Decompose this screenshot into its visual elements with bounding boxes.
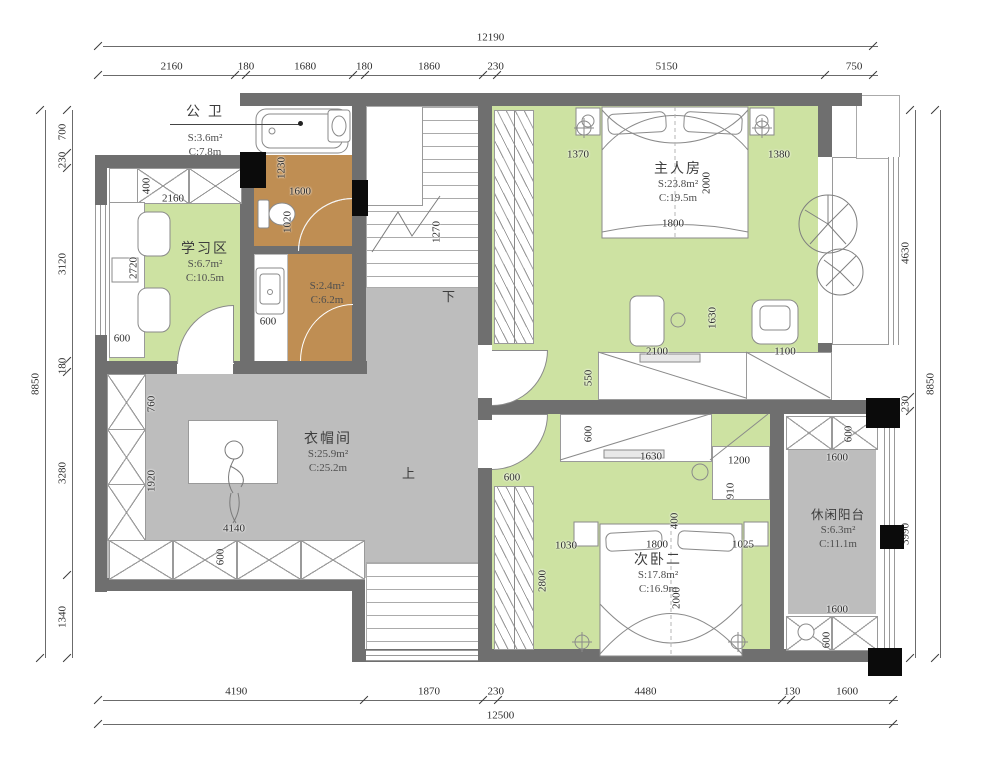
room-name: 衣帽间 xyxy=(304,430,352,446)
interior-dimension-label: 910 xyxy=(726,483,737,500)
dimension-tick xyxy=(93,720,101,728)
room-area: S:25.9m² xyxy=(304,448,352,460)
wall-segment xyxy=(818,93,832,157)
room-name: 休闲阳台 xyxy=(811,508,865,522)
wall-segment xyxy=(770,414,784,654)
room-area: S:3.6m² xyxy=(188,132,223,144)
interior-dimension-label: 1920 xyxy=(147,470,158,492)
interior-dimension-label: 1230 xyxy=(277,157,288,179)
dimension-label: 1680 xyxy=(294,62,316,73)
room-circ: C:25.2m xyxy=(304,462,352,474)
interior-dimension-label: 600 xyxy=(504,473,521,484)
interior-dimension-label: 4140 xyxy=(223,524,245,535)
dimension-tick xyxy=(62,106,70,114)
dimension-label: 700 xyxy=(58,123,69,140)
interior-dimension-label: 760 xyxy=(147,396,158,413)
interior-dimension-label: 2000 xyxy=(672,587,683,609)
dimension-label: 180 xyxy=(58,358,69,375)
dimension-tick xyxy=(35,106,43,114)
interior-dimension-label: 1600 xyxy=(826,605,848,616)
upper-stairs-landing xyxy=(367,107,423,206)
room-area: S:2.4m² xyxy=(310,280,345,292)
column-marker xyxy=(880,525,904,549)
wall-segment xyxy=(107,361,177,374)
top-balcony-window xyxy=(888,157,900,345)
interior-dimension-label: 1270 xyxy=(432,221,443,243)
study-top-closet-2 xyxy=(189,168,242,204)
master-tv-cabinet-right xyxy=(746,352,832,400)
cloak-closet-bottom-4 xyxy=(301,540,365,580)
room-label-zhurenfang: 主人房 S:23.8m² C:19.5m xyxy=(654,160,702,204)
dimension-label: 180 xyxy=(238,62,255,73)
interior-dimension-label: 1100 xyxy=(774,347,796,358)
room-circ: C:6.2m xyxy=(310,294,345,306)
dimension-tick xyxy=(62,571,70,579)
dimension-tick xyxy=(905,106,913,114)
room-label-yimaojian: 衣帽间 S:25.9m² C:25.2m xyxy=(304,430,352,474)
interior-dimension-label: 2800 xyxy=(538,570,549,592)
wall-segment xyxy=(240,93,862,106)
wall-segment xyxy=(478,468,492,660)
gongwei-leader-dot xyxy=(298,121,303,126)
dimension-line xyxy=(940,110,941,658)
column-marker xyxy=(868,648,902,676)
cloak-closet-bottom-2 xyxy=(173,540,237,580)
interior-dimension-label: 400 xyxy=(670,513,681,530)
room-label-yangtai: 休闲阳台 S:6.3m² C:11.1m xyxy=(811,508,865,551)
dimension-tick xyxy=(93,71,101,79)
floor-plan-canvas: { "colors":{"wall":"#6f6f6f","green":"#c… xyxy=(0,0,1000,777)
dimension-label: 4480 xyxy=(635,687,657,698)
interior-dimension-label: 600 xyxy=(260,317,277,328)
bathtub-icon xyxy=(256,109,348,153)
dimension-label: 3120 xyxy=(58,253,69,275)
interior-dimension-label: 1600 xyxy=(289,187,311,198)
dimension-label: 1870 xyxy=(418,687,440,698)
gongwei-leader-line xyxy=(170,124,300,125)
dimension-label: 8850 xyxy=(926,373,937,395)
room-label-xuexiqu: 学习区 S:6.7m² C:10.5m xyxy=(181,240,229,284)
interior-dimension-label: 400 xyxy=(142,178,153,195)
dimension-line xyxy=(103,46,878,47)
dimension-label: 12500 xyxy=(487,711,515,722)
dimension-tick xyxy=(930,654,938,662)
room-label-bath2: S:2.4m² C:6.2m xyxy=(310,278,345,306)
interior-dimension-label: 1020 xyxy=(283,211,294,233)
left-wall-window xyxy=(95,205,107,335)
interior-dimension-label: 1200 xyxy=(728,456,750,467)
dimension-label: 230 xyxy=(487,62,504,73)
dimension-label: 8850 xyxy=(31,373,42,395)
wall-segment xyxy=(478,93,492,345)
interior-dimension-label: 2000 xyxy=(702,172,713,194)
interior-dimension-label: 550 xyxy=(584,370,595,387)
cloak-closet-left-2 xyxy=(107,429,146,486)
corridor-fill xyxy=(366,285,478,562)
room-name: 次卧二 xyxy=(634,551,682,567)
room-label-gongwei-stats: S:3.6m² C:7.8m xyxy=(188,130,223,158)
second-bedroom-wardrobe xyxy=(494,486,534,650)
interior-dimension-label: 600 xyxy=(822,632,833,649)
dimension-label: 12190 xyxy=(477,33,505,44)
interior-dimension-label: 2100 xyxy=(646,347,668,358)
lower-stairs xyxy=(366,562,480,651)
wall-segment xyxy=(352,578,365,660)
dimension-line xyxy=(45,110,46,658)
room-circ: C:7.8m xyxy=(188,146,223,158)
interior-dimension-label: 600 xyxy=(584,426,595,443)
dimension-tick xyxy=(905,654,913,662)
master-tv-cabinet-left xyxy=(598,352,748,400)
dimension-line xyxy=(103,724,898,725)
interior-dimension-label: 1370 xyxy=(567,150,589,161)
cloak-island xyxy=(188,420,278,484)
wall-segment xyxy=(95,155,247,168)
interior-dimension-label: 600 xyxy=(216,549,227,566)
room-label-gongwei: 公 卫 xyxy=(186,103,224,119)
cloak-closet-left-1 xyxy=(107,374,146,431)
room-circ: C:11.1m xyxy=(811,538,865,550)
interior-dimension-label: 1630 xyxy=(708,307,719,329)
dimension-tick xyxy=(62,654,70,662)
interior-dimension-label: 1600 xyxy=(826,453,848,464)
room-area: S:23.8m² xyxy=(654,178,702,190)
study-door-leaf xyxy=(233,305,234,363)
dimension-line xyxy=(72,110,73,658)
interior-dimension-label: 1800 xyxy=(662,219,684,230)
room-name: 公 卫 xyxy=(186,103,224,119)
dimension-tick xyxy=(93,696,101,704)
stair-bay-window xyxy=(366,650,478,661)
interior-dimension-label: 2720 xyxy=(129,257,140,279)
room-area: S:6.7m² xyxy=(181,258,229,270)
master-door-leaf xyxy=(492,350,547,351)
master-wardrobe xyxy=(494,110,534,344)
dimension-label: 1600 xyxy=(836,687,858,698)
study-top-counter xyxy=(109,168,139,204)
right-cabinet-bottom-2 xyxy=(832,616,878,651)
room-circ: C:10.5m xyxy=(181,272,229,284)
interior-dimension-label: 600 xyxy=(114,334,131,345)
interior-dimension-label: 1630 xyxy=(640,452,662,463)
dimension-tick xyxy=(93,42,101,50)
dimension-label: 750 xyxy=(846,62,863,73)
bath-sink-icon xyxy=(328,110,350,142)
dimension-label: 230 xyxy=(58,152,69,169)
dimension-line xyxy=(915,110,916,658)
room-area: S:17.8m² xyxy=(634,569,682,581)
dimension-tick xyxy=(930,106,938,114)
stairs-up-label: 上 xyxy=(402,463,415,482)
dimension-line xyxy=(103,75,878,76)
room-name: 学习区 xyxy=(181,240,229,256)
interior-dimension-label: 1025 xyxy=(732,540,754,551)
wall-segment xyxy=(352,93,366,374)
vanity-area-fill xyxy=(254,254,288,363)
dimension-label: 230 xyxy=(487,687,504,698)
room-area: S:6.3m² xyxy=(811,524,865,536)
column-marker xyxy=(866,398,900,428)
dimension-label: 4630 xyxy=(901,242,912,264)
top-right-step-area xyxy=(856,95,900,159)
second-bedroom-door-leaf xyxy=(492,414,547,415)
dimension-label: 5150 xyxy=(656,62,678,73)
stairs-down-label: 下 xyxy=(442,286,455,305)
room-name: 主人房 xyxy=(654,160,702,176)
dimension-label: 230 xyxy=(901,396,912,413)
dimension-label: 1340 xyxy=(58,606,69,628)
right-cabinet-top-1 xyxy=(786,416,832,450)
dimension-tick xyxy=(35,654,43,662)
column-marker xyxy=(352,180,368,216)
cloak-closet-bottom-1 xyxy=(109,540,173,580)
dimension-label: 1860 xyxy=(418,62,440,73)
room-circ: C:19.5m xyxy=(654,192,702,204)
interior-dimension-label: 1800 xyxy=(646,540,668,551)
interior-dimension-label: 1380 xyxy=(768,150,790,161)
interior-dimension-label: 600 xyxy=(844,426,855,443)
dimension-label: 3280 xyxy=(58,462,69,484)
column-marker xyxy=(240,152,266,188)
dimension-label: 4190 xyxy=(225,687,247,698)
dimension-label: 2160 xyxy=(161,62,183,73)
top-balcony-area xyxy=(832,157,892,345)
interior-dimension-label: 1030 xyxy=(555,541,577,552)
wall-segment xyxy=(233,361,367,374)
cloak-closet-left-3 xyxy=(107,484,146,541)
interior-dimension-label: 2160 xyxy=(162,194,184,205)
dimension-label: 180 xyxy=(356,62,373,73)
cloak-closet-bottom-3 xyxy=(237,540,301,580)
dimension-label: 130 xyxy=(784,687,801,698)
